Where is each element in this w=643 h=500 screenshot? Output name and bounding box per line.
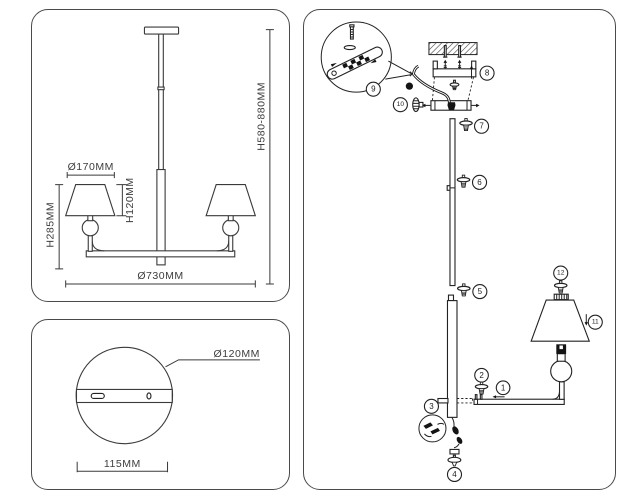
label-shade-height: H120MM [124,177,136,223]
thumbscrew-knob [413,98,423,112]
bracket-screw [443,60,447,69]
end-cap [450,449,459,454]
shade-down-arrow [585,314,588,326]
dimension-total-width: Ø730MM [66,270,256,288]
shade-left [66,185,115,216]
lamp-stem [560,382,565,400]
label-plate-width: 115MM [104,458,141,470]
small-screw [450,80,459,89]
front-view-drawing: Ø170MM H120MM H285MM Ø730MM H580-880MM [32,10,289,301]
dimension-suspension-height: H580-880MM [255,30,274,284]
dimension-shade-diameter: Ø170MM [67,161,114,178]
anchor-washer [344,46,355,50]
anchor-screw [350,25,354,39]
part-number-2: 2 [479,371,484,380]
suspension-rod [159,34,164,169]
dimension-body-height: H285MM [45,185,64,269]
part-number-8: 8 [485,69,490,78]
arm-stub-left [438,399,448,403]
coupler-screw-5 [458,284,470,296]
lower-stem-hub [438,295,473,417]
label-suspension-height: H580-880MM [255,82,267,151]
lamp-shade [531,300,589,341]
part-number-1: 1 [501,383,506,392]
part-number-3: 3 [429,402,434,411]
stem-tenon [448,295,453,301]
sphere-left [82,220,98,236]
dimension-plate-width: 115MM [77,458,167,472]
lamp-sphere [551,361,572,382]
mount-hole [147,393,151,399]
lamp-arm-assembly: 1 2 11 [474,266,602,404]
riser-right [229,235,233,252]
candle-sleeve [557,354,565,362]
arm-fillet-right [217,241,229,251]
ceiling-cap [144,27,178,34]
bracket-screw [458,60,462,69]
insert-arrow [493,395,505,398]
strain-relief-bolt [447,102,455,110]
rod-joint [158,87,164,90]
arm-socket-dashes [457,399,473,403]
panel-assembly-diagram: 9 [303,9,616,490]
dimension-canopy-diameter: Ø120MM [166,348,260,367]
assembly-drawing: 9 [304,10,615,489]
part-number-5: 5 [478,287,483,296]
label-shade-diameter: Ø170MM [68,161,114,173]
wire-connector [455,436,463,445]
coupler-screw-6 [457,175,469,187]
part-number-11: 11 [592,319,599,326]
terminal-block [423,422,433,429]
panel-front-dimensions: Ø170MM H120MM H285MM Ø730MM H580-880MM [31,9,290,302]
anchor-detail-callout: 9 [321,22,414,96]
wire-tail [454,444,459,448]
canopy-assembly: 10 [393,98,479,112]
upper-rod-assembly: 7 6 5 [447,119,488,299]
bottom-finial [448,455,461,466]
arm-fillet-left [92,241,104,251]
socket-slot [560,346,563,350]
lock-screw-top [406,83,413,90]
mount-slot [91,393,104,398]
chandelier-front-view [66,27,256,265]
arm-bar [86,251,235,257]
ceiling-hatch [429,43,477,55]
coupler-screw-2 [475,382,487,394]
part-number-10: 10 [397,101,405,108]
ceiling-section [429,43,477,58]
panel-canopy-view: Ø120MM 115MM [31,319,290,490]
coupler-screw-7 [460,119,472,131]
arm-pin [480,395,482,400]
dimension-shade-height: H120MM [116,177,136,223]
label-total-width: Ø730MM [137,270,183,282]
lighting-fixture-manual-page: Ø170MM H120MM H285MM Ø730MM H580-880MM [0,0,643,500]
wire-lead [452,417,454,426]
side-arrow-right [472,104,480,108]
shade-fitter-ring [554,294,568,299]
arm-pin [475,395,477,400]
shade-finial-12 [554,281,566,293]
wire-connector [451,425,460,435]
label-canopy-diameter: Ø120MM [214,348,260,360]
part-number-9: 9 [371,85,376,94]
label-body-height: H285MM [45,202,57,248]
canopy-view-drawing: Ø120MM 115MM [32,320,289,489]
part-number-6: 6 [477,178,482,187]
rod-set-screw-boss [447,186,450,191]
part-number-4: 4 [452,470,457,479]
riser-left [88,235,92,252]
arm-fillet [553,391,560,399]
shade-right [206,185,255,216]
wiring-detail-circle [419,415,446,442]
part-number-12: 12 [557,270,565,277]
part-number-7: 7 [479,122,484,131]
sphere-right [223,220,239,236]
terminal-block [430,428,440,435]
